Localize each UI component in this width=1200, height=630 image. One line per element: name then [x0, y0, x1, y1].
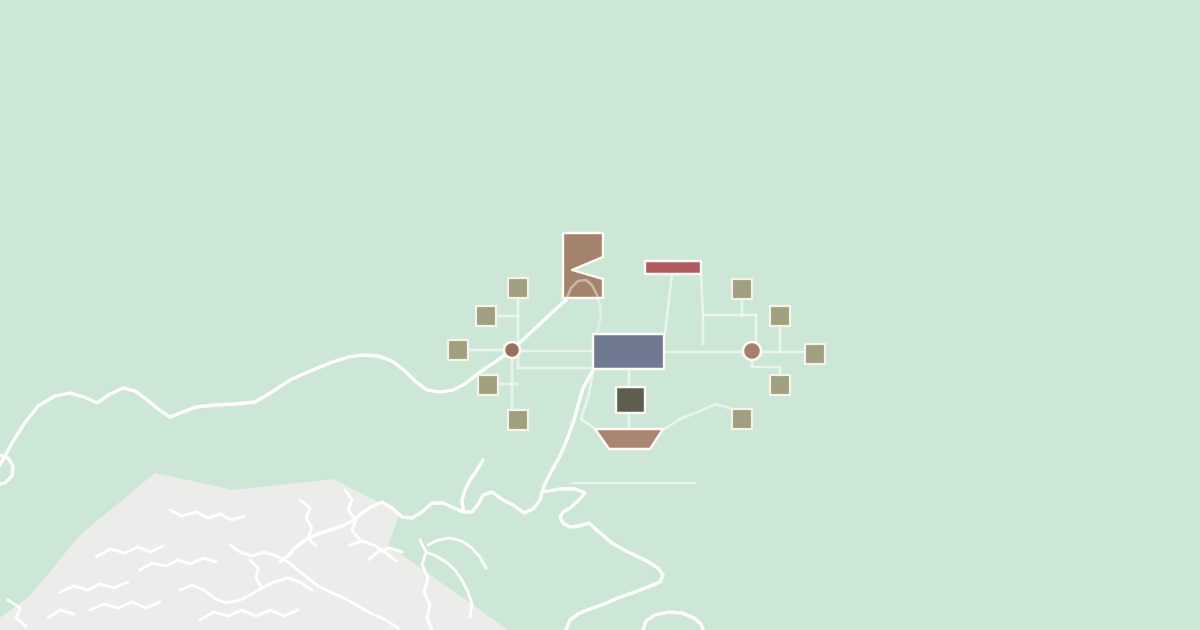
- plaza-square: [805, 344, 825, 364]
- dark-building: [616, 387, 645, 413]
- plaza-square: [508, 278, 528, 298]
- map-preview: [0, 0, 1200, 630]
- plaza-square: [770, 306, 790, 326]
- plaza-square: [732, 409, 752, 429]
- blue-building: [593, 334, 664, 369]
- west-roundabout: [504, 342, 520, 358]
- red-bar-building: [645, 261, 701, 274]
- plaza-square: [478, 375, 498, 395]
- plaza-square: [770, 375, 790, 395]
- east-roundabout: [743, 342, 761, 360]
- map-canvas: [0, 0, 1200, 630]
- plaza-square: [508, 410, 528, 430]
- plaza-square: [476, 306, 496, 326]
- plaza-square: [448, 340, 468, 360]
- plaza-square: [732, 279, 752, 299]
